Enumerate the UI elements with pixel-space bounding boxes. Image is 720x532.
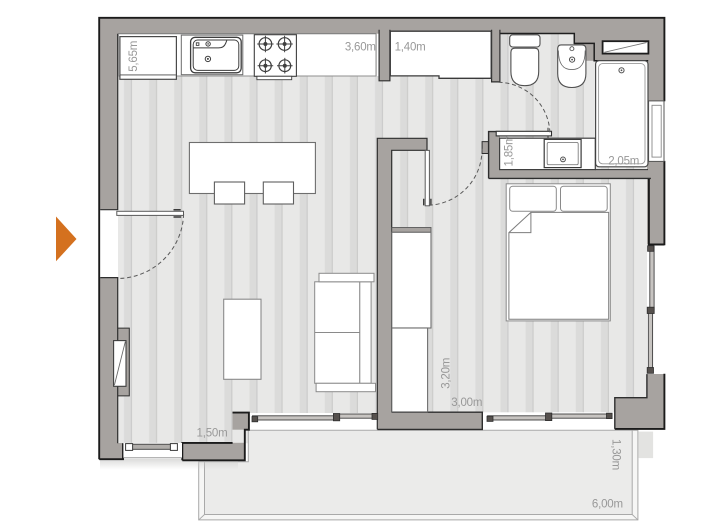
svg-text:1,50m: 1,50m — [197, 427, 228, 439]
svg-text:3,60m: 3,60m — [345, 42, 376, 54]
svg-text:6,00m: 6,00m — [592, 498, 623, 510]
svg-text:1,30m: 1,30m — [609, 439, 621, 470]
svg-text:2,05m: 2,05m — [608, 155, 639, 167]
svg-text:1,85m: 1,85m — [503, 136, 515, 167]
svg-text:1,40m: 1,40m — [395, 42, 426, 54]
svg-text:3,20m: 3,20m — [440, 358, 452, 389]
svg-text:3,00m: 3,00m — [451, 397, 482, 409]
svg-text:5,65m: 5,65m — [128, 41, 140, 72]
